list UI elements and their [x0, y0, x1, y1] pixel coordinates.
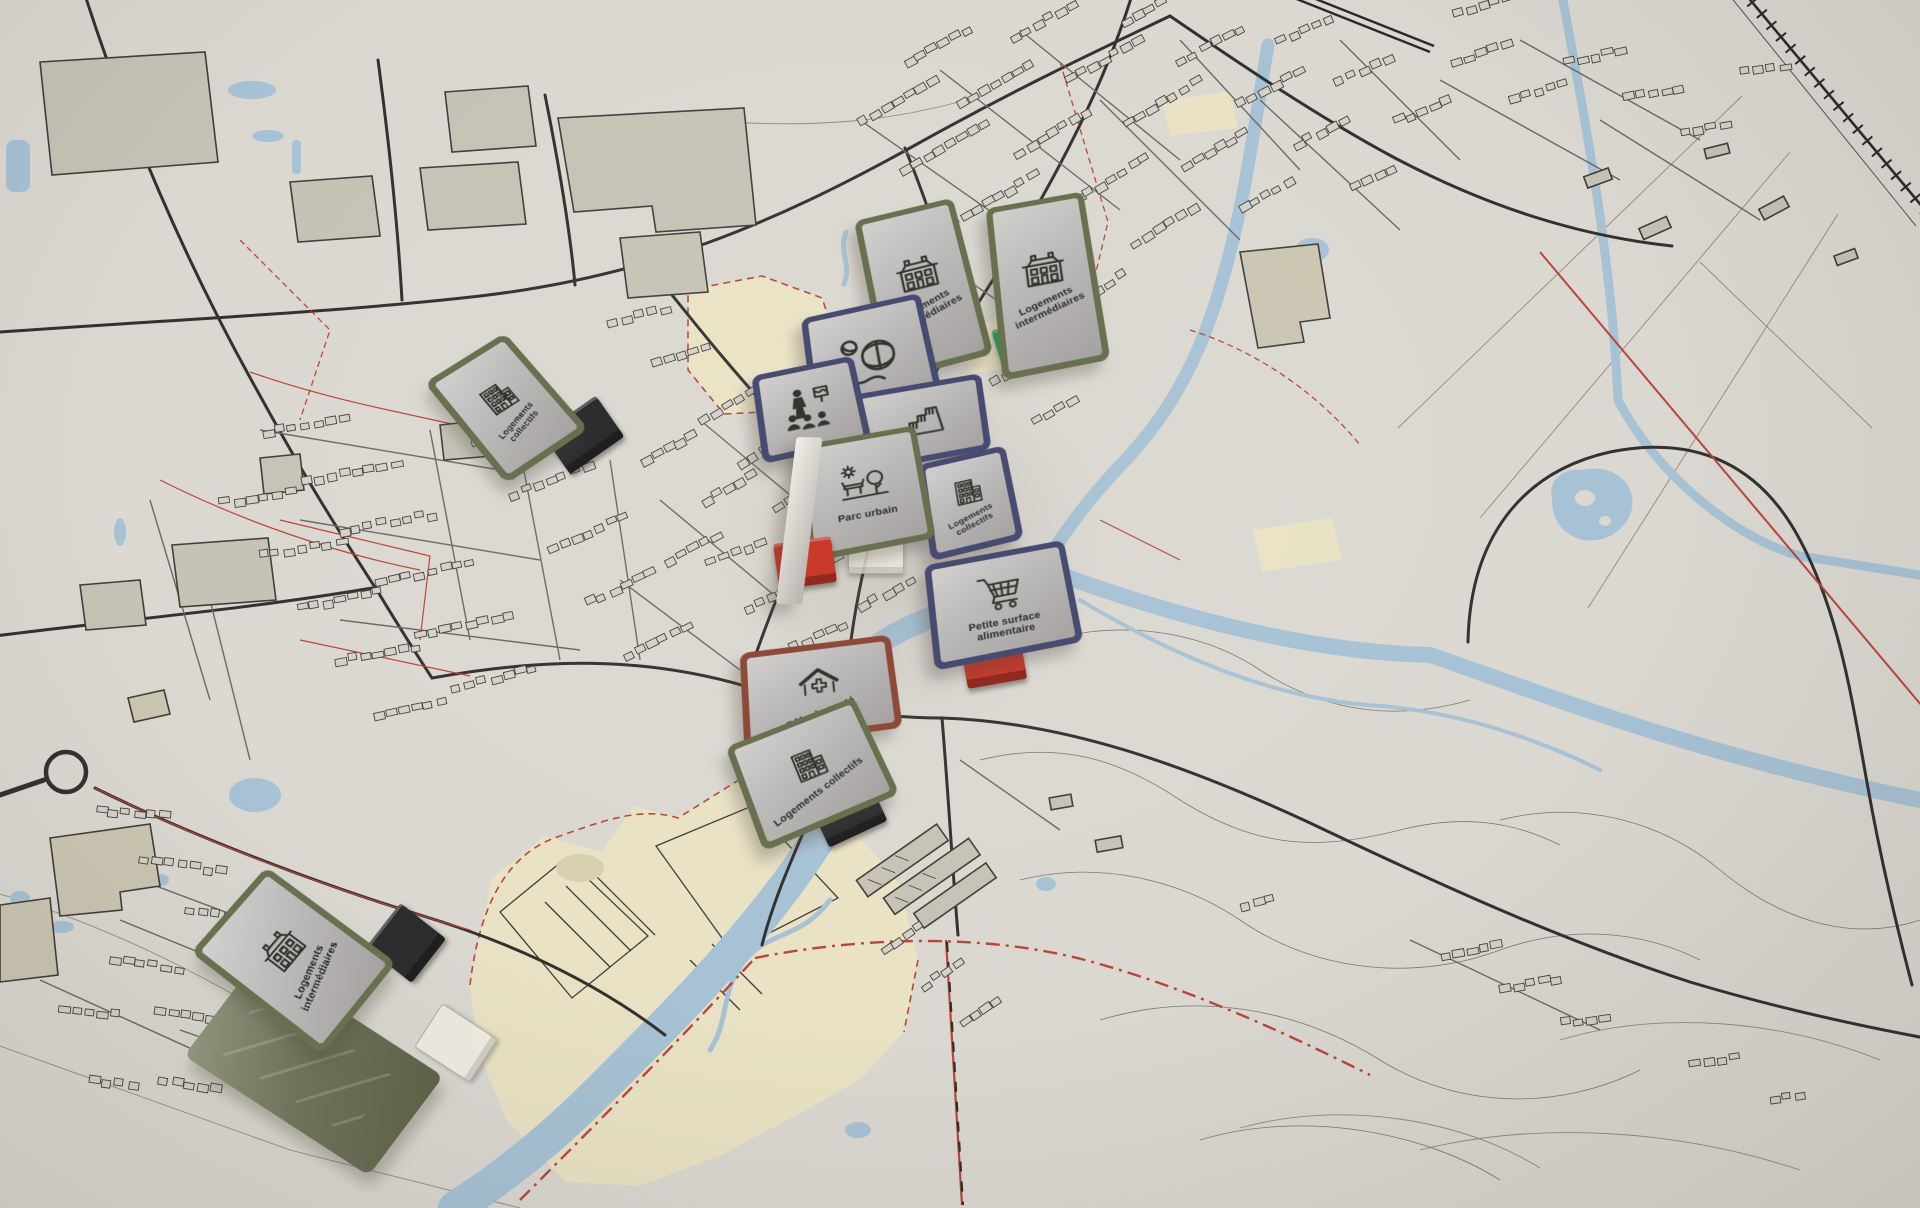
map-marker-blank-card-edge[interactable] — [776, 436, 802, 604]
shopping-cart-icon — [970, 564, 1031, 620]
creek-center — [843, 232, 846, 284]
map-marker-logements-collectifs-west[interactable]: Logements collectifs — [498, 318, 598, 456]
planning-map-photo: Logements collectifs Logements intermédi… — [0, 0, 1920, 1208]
map-marker-logements-collectifs-center[interactable]: Logements collectifs — [930, 438, 1026, 550]
map-marker-logements-intermediaires-southwest[interactable]: Logements intermédiaires — [300, 836, 420, 1008]
park-icon — [833, 457, 895, 512]
map-marker-petite-surface-alimentaire[interactable]: Petite surface alimentaire — [934, 536, 1086, 656]
map-marker-logements-collectifs-south[interactable]: Logements collectifs — [758, 696, 908, 822]
map-marker-parc-urbain[interactable]: Parc urbain — [808, 410, 938, 550]
map-marker-logements-intermediaires-right[interactable]: Logements intermédiaires — [1002, 166, 1112, 370]
